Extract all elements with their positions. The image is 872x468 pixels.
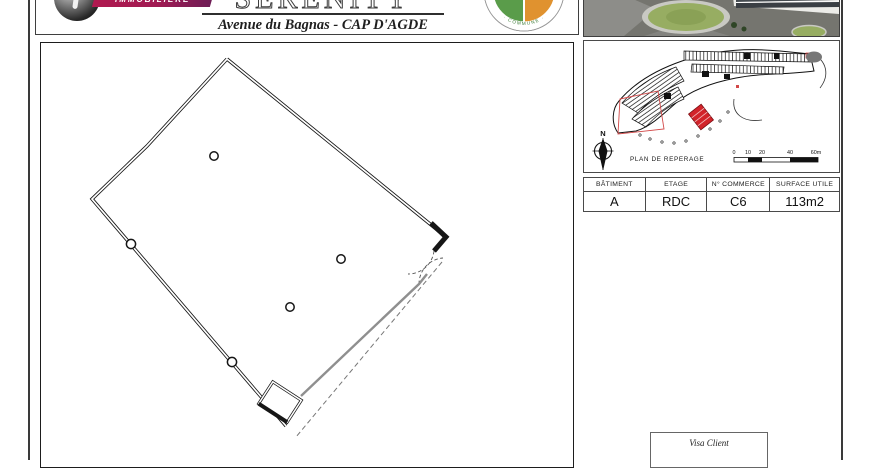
table-value-row: A RDC C6 113m2	[584, 192, 840, 212]
table-header-row: BÂTIMENT ETAGE N° COMMERCE SURFACE UTILE	[584, 178, 840, 192]
walls-inner	[92, 59, 446, 426]
scale-bar: 0 10 20 40 60m	[733, 150, 822, 162]
vestibule-box	[259, 382, 302, 422]
project-title-clipped: SERENITY	[202, 0, 444, 12]
value-surface: 113m2	[770, 192, 840, 212]
building-render-thumbnail	[583, 0, 840, 37]
value-commerce: C6	[707, 192, 770, 212]
column	[337, 255, 345, 263]
column	[286, 303, 294, 311]
scale-tick: 0	[733, 150, 736, 156]
project-title: SERENITY	[235, 0, 412, 12]
title-underline	[202, 13, 444, 15]
map-label: PLAN DE REPERAGE	[630, 156, 704, 163]
brand-label: IMMOBILIÈRE	[115, 0, 190, 4]
wall-column	[126, 239, 135, 248]
project-address: Avenue du Bagnas - CAP D'AGDE	[202, 17, 444, 34]
north-compass-icon: N	[593, 129, 614, 170]
scale-tick: 10	[745, 150, 751, 156]
header-box: IMMOBILIÈRE SERENITY Avenue du Bagnas - …	[35, 0, 579, 35]
floor-plan-drawing	[41, 43, 573, 467]
header-etage: ETAGE	[645, 178, 707, 192]
brand-ribbon: IMMOBILIÈRE	[92, 0, 214, 7]
wall-column	[227, 357, 236, 366]
column	[210, 152, 218, 160]
entrance-jamb	[431, 223, 446, 251]
glazing-axis-dashed	[296, 262, 442, 437]
scale-tick: 40	[787, 150, 793, 156]
visa-client-label: Visa Client	[689, 438, 729, 448]
scale-tick: 20	[759, 150, 765, 156]
storefront-line	[301, 274, 427, 396]
page-border-right	[841, 0, 843, 460]
compass-north-label: N	[600, 129, 605, 138]
highlighted-unit-c6	[689, 104, 714, 130]
page-border-left	[28, 0, 30, 460]
floor-plan-box	[40, 42, 574, 468]
scale-tick: 60m	[811, 150, 822, 156]
header-commerce: N° COMMERCE	[707, 178, 770, 192]
value-batiment: A	[584, 192, 646, 212]
commune-seal-icon: · COMMUNE · · COMMUNE ·	[480, 0, 568, 35]
header-batiment: BÂTIMENT	[584, 178, 646, 192]
visa-client-box: Visa Client	[650, 432, 768, 468]
columns	[126, 152, 345, 367]
value-etage: RDC	[645, 192, 707, 212]
location-map-box: N PLAN DE REPERAGE 0 10 20 40 60m	[583, 40, 840, 173]
header-surface: SURFACE UTILE	[770, 178, 840, 192]
unit-info-table: BÂTIMENT ETAGE N° COMMERCE SURFACE UTILE…	[583, 177, 840, 212]
walls-outer	[92, 59, 446, 426]
site-plan: N PLAN DE REPERAGE 0 10 20 40 60m	[584, 41, 837, 170]
render-illustration	[584, 0, 839, 36]
title-block: SERENITY Avenue du Bagnas - CAP D'AGDE	[202, 0, 444, 34]
